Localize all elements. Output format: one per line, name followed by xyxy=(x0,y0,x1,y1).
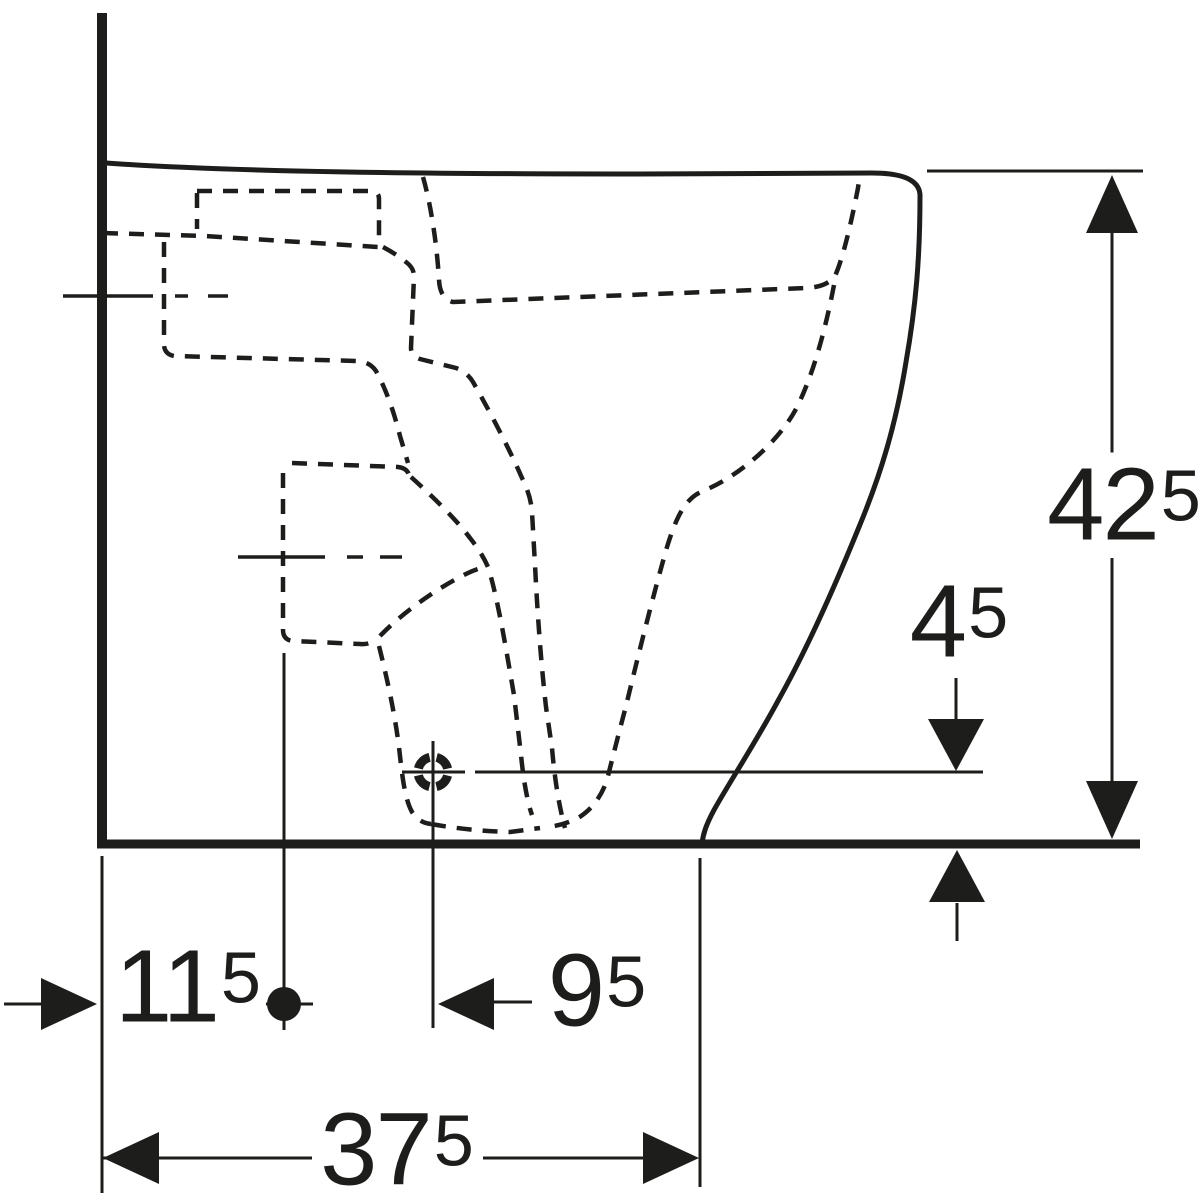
dim-superscript: 5 xyxy=(434,1102,474,1182)
drain-center-dot xyxy=(267,987,301,1021)
dim-superscript: 5 xyxy=(1161,457,1200,537)
hidden-bowl-interior xyxy=(423,177,859,302)
hidden-rim-box xyxy=(197,191,379,236)
dim-label-wall-to-drain: 115 xyxy=(110,935,266,1038)
arrow-375-right xyxy=(643,1132,699,1184)
arrow-45-up xyxy=(929,850,985,902)
hidden-rim-shelf-top xyxy=(103,233,378,247)
pan-profile xyxy=(106,163,920,844)
arrow-425-down xyxy=(1086,781,1138,839)
dim-value: 37 xyxy=(320,1092,431,1200)
dim-label-drain-to-outlet: 95 xyxy=(543,939,651,1042)
hidden-trapway-front xyxy=(411,477,532,815)
pan-outline xyxy=(97,13,1140,848)
centerlines xyxy=(63,296,402,557)
hidden-trapway-join xyxy=(380,567,487,636)
arrow-425-up xyxy=(1086,175,1138,233)
hidden-internal-lines xyxy=(103,177,859,832)
arrow-95-left xyxy=(438,978,494,1030)
dim-label-outlet-height: 45 xyxy=(905,570,1013,673)
hidden-flush-channel xyxy=(383,247,565,828)
hidden-bowl-back xyxy=(546,285,834,827)
hidden-drain-box-top xyxy=(292,463,409,475)
arrow-115-right xyxy=(41,978,97,1030)
technical-drawing-canvas: 425 45 115 95 375 xyxy=(0,0,1200,1200)
hidden-shelf-lower xyxy=(164,242,408,463)
dim-superscript: 5 xyxy=(968,574,1008,654)
dim-value: 9 xyxy=(548,933,603,1048)
dim-value: 4 xyxy=(910,564,965,679)
dim-superscript: 5 xyxy=(221,939,261,1019)
hidden-outlet-bottom xyxy=(431,824,540,832)
dim-value: 11 xyxy=(115,929,218,1044)
dim-value: 42 xyxy=(1047,447,1158,562)
dim-label-depth: 375 xyxy=(315,1098,479,1200)
hidden-outlet-elbow xyxy=(379,646,431,824)
dim-superscript: 5 xyxy=(606,943,646,1023)
arrow-375-left xyxy=(103,1132,159,1184)
dim-label-overall-height: 425 xyxy=(1042,453,1200,556)
arrow-45-down xyxy=(928,719,984,771)
